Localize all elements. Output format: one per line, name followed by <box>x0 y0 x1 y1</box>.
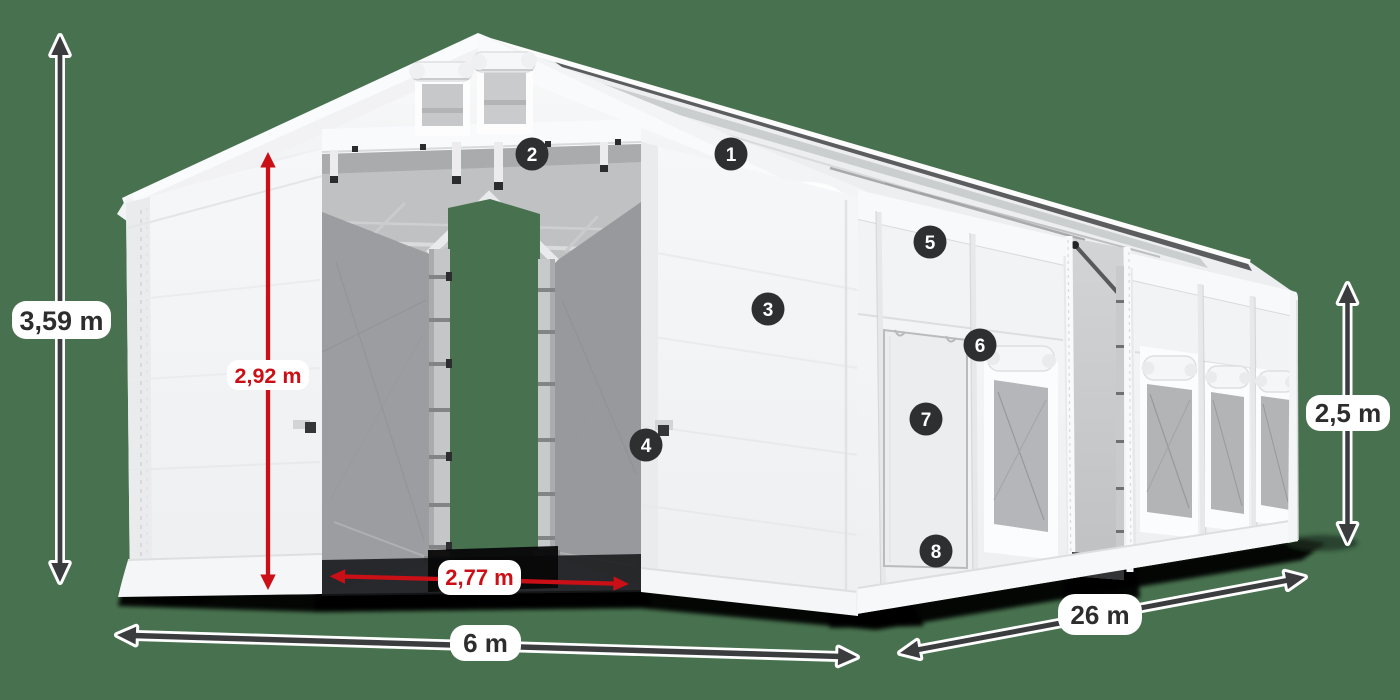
svg-text:1: 1 <box>726 145 737 166</box>
svg-text:2,77 m: 2,77 m <box>445 565 514 590</box>
svg-text:2,92 m: 2,92 m <box>235 364 302 388</box>
svg-text:6 m: 6 m <box>463 628 508 658</box>
svg-text:3: 3 <box>763 300 774 321</box>
svg-text:3,59 m: 3,59 m <box>19 306 103 336</box>
svg-text:7: 7 <box>921 410 932 431</box>
svg-text:2: 2 <box>527 145 538 166</box>
svg-text:2,5 m: 2,5 m <box>1315 398 1382 428</box>
svg-text:6: 6 <box>975 336 986 357</box>
svg-text:5: 5 <box>925 233 936 254</box>
svg-text:8: 8 <box>931 542 942 563</box>
svg-text:4: 4 <box>641 436 652 457</box>
svg-text:26 m: 26 m <box>1070 600 1129 630</box>
